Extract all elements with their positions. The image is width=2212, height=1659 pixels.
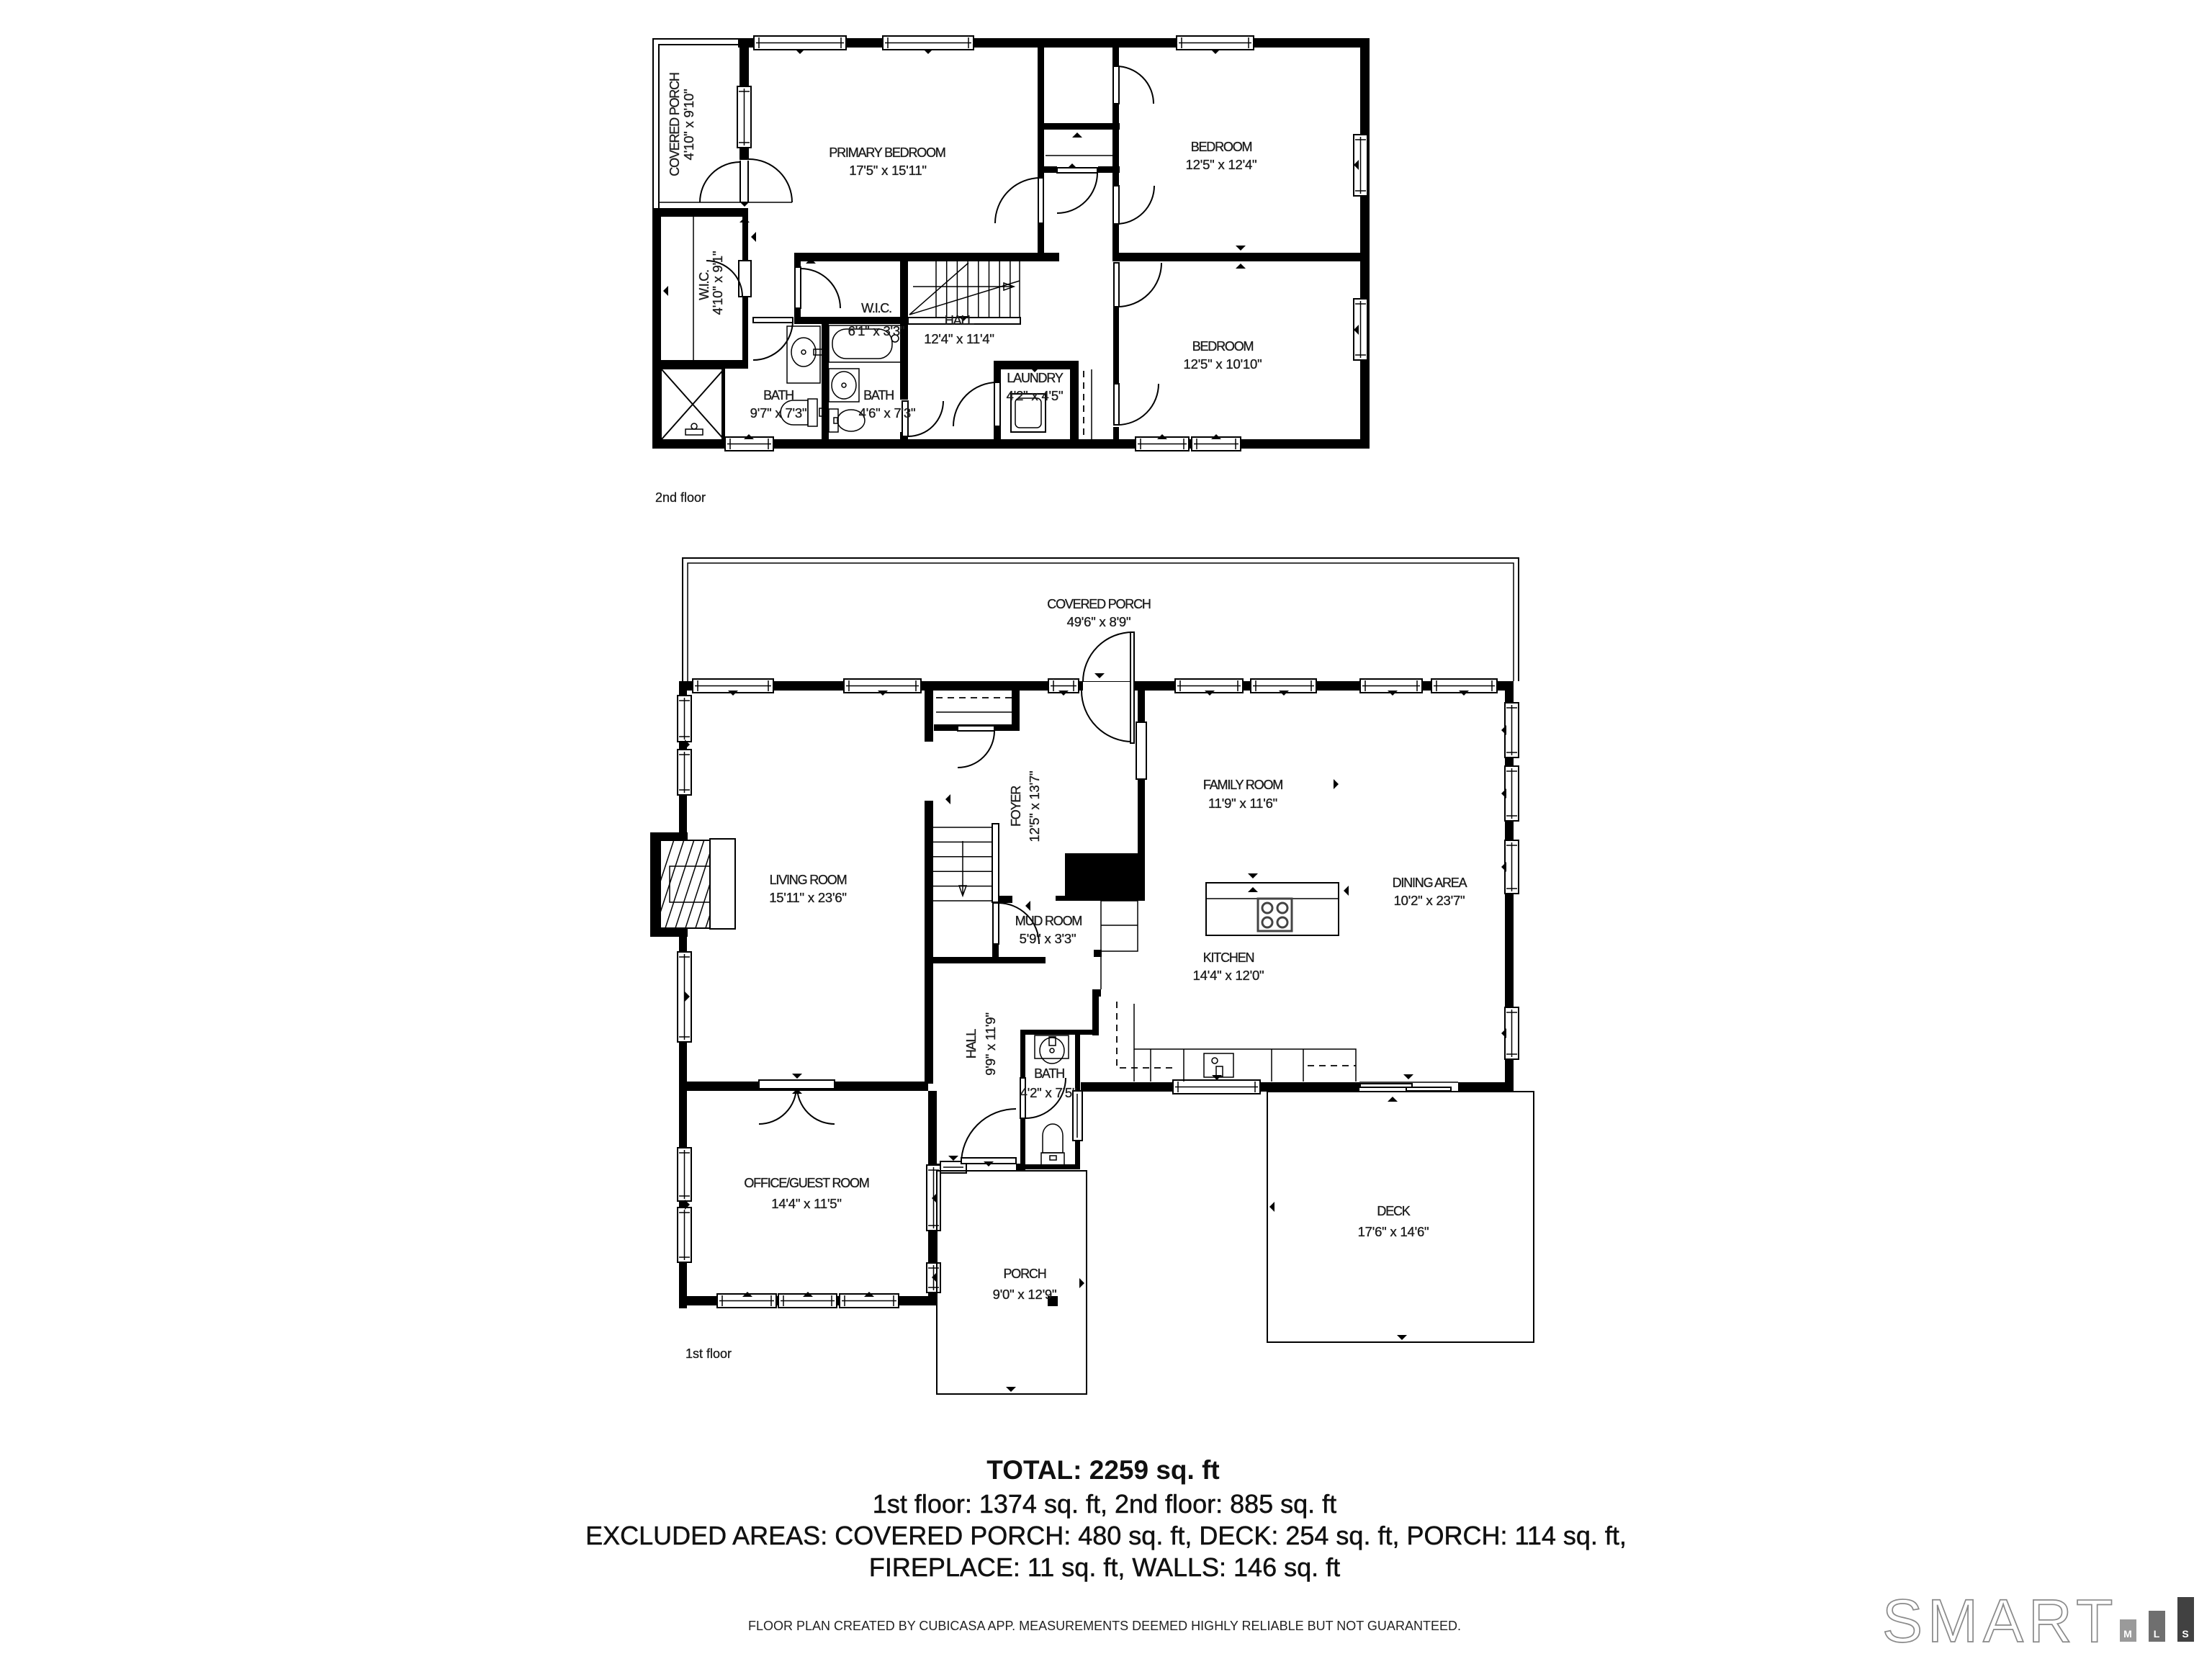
svg-text:11'9" x 11'6": 11'9" x 11'6": [1208, 796, 1277, 811]
svg-text:49'6" x 8'9": 49'6" x 8'9": [1067, 614, 1131, 629]
svg-text:DECK: DECK: [1377, 1204, 1410, 1218]
svg-text:LIVING ROOM: LIVING ROOM: [770, 873, 847, 887]
svg-text:W.I.C.: W.I.C.: [697, 270, 711, 300]
svg-text:TOTAL: 2259 sq. ft: TOTAL: 2259 sq. ft: [986, 1455, 1219, 1485]
svg-text:EXCLUDED AREAS: COVERED PORCH:: EXCLUDED AREAS: COVERED PORCH: 480 sq. f…: [585, 1521, 1627, 1550]
svg-text:15'11" x 23'6": 15'11" x 23'6": [769, 890, 847, 905]
svg-text:HALL: HALL: [945, 313, 974, 328]
svg-text:4'6" x 7'3": 4'6" x 7'3": [859, 405, 916, 421]
svg-text:12'4" x 11'4": 12'4" x 11'4": [924, 331, 994, 346]
svg-text:FOYER: FOYER: [1009, 786, 1023, 827]
svg-text:4'10" x 9'1": 4'10" x 9'1": [710, 251, 725, 315]
svg-text:OFFICE/GUEST ROOM: OFFICE/GUEST ROOM: [744, 1176, 868, 1190]
svg-text:1st floor: 1374 sq. ft, 2nd fl: 1st floor: 1374 sq. ft, 2nd floor: 885 s…: [873, 1489, 1336, 1519]
svg-text:LAUNDRY: LAUNDRY: [1007, 371, 1063, 385]
svg-text:1st floor: 1st floor: [685, 1346, 732, 1361]
svg-text:9'7" x 7'3": 9'7" x 7'3": [750, 405, 807, 421]
svg-text:FAMILY ROOM: FAMILY ROOM: [1203, 778, 1282, 792]
svg-text:BEDROOM: BEDROOM: [1192, 339, 1254, 354]
svg-text:2nd floor: 2nd floor: [655, 490, 706, 505]
svg-text:S: S: [2182, 1628, 2188, 1640]
svg-text:BEDROOM: BEDROOM: [1191, 140, 1252, 154]
svg-text:14'4" x 12'0": 14'4" x 12'0": [1193, 968, 1264, 983]
svg-text:6'1" x 3'3": 6'1" x 3'3": [848, 323, 905, 338]
svg-text:9'9" x 11'9": 9'9" x 11'9": [983, 1012, 998, 1075]
svg-text:SMART: SMART: [1882, 1587, 2118, 1655]
svg-text:PORCH: PORCH: [1003, 1267, 1046, 1281]
svg-text:4'2" x 4'5": 4'2" x 4'5": [1007, 388, 1064, 403]
svg-text:M: M: [2123, 1628, 2132, 1640]
svg-text:FIREPLACE: 11 sq. ft, WALLS: 1: FIREPLACE: 11 sq. ft, WALLS: 146 sq. ft: [869, 1552, 1340, 1582]
svg-text:12'5" x 12'4": 12'5" x 12'4": [1186, 157, 1257, 172]
svg-text:17'5" x 15'11": 17'5" x 15'11": [849, 163, 927, 178]
svg-text:COVERED PORCH: COVERED PORCH: [1047, 597, 1151, 611]
svg-text:17'6" x 14'6": 17'6" x 14'6": [1358, 1224, 1429, 1239]
svg-text:5'9" x 3'3": 5'9" x 3'3": [1020, 931, 1076, 946]
svg-text:4'10" x 9'10": 4'10" x 9'10": [681, 89, 696, 161]
svg-text:BATH: BATH: [1034, 1066, 1064, 1081]
svg-text:BATH: BATH: [763, 388, 793, 403]
svg-text:COVERED PORCH: COVERED PORCH: [667, 73, 682, 176]
svg-text:HALL: HALL: [964, 1029, 979, 1058]
svg-text:KITCHEN: KITCHEN: [1203, 950, 1254, 965]
svg-text:14'4" x 11'5": 14'4" x 11'5": [771, 1196, 842, 1211]
svg-text:9'0" x 12'9": 9'0" x 12'9": [993, 1287, 1057, 1302]
svg-text:12'5" x 10'10": 12'5" x 10'10": [1184, 356, 1262, 372]
svg-text:BATH: BATH: [863, 388, 894, 403]
svg-text:12'5" x 13'7": 12'5" x 13'7": [1027, 771, 1042, 842]
svg-text:L: L: [2154, 1628, 2160, 1640]
svg-text:DINING AREA: DINING AREA: [1393, 876, 1467, 890]
svg-text:PRIMARY BEDROOM: PRIMARY BEDROOM: [829, 145, 945, 160]
svg-text:W.I.C.: W.I.C.: [861, 301, 891, 315]
svg-text:4'2" x 7'5": 4'2" x 7'5": [1020, 1085, 1077, 1100]
svg-text:10'2" x 23'7": 10'2" x 23'7": [1394, 893, 1465, 908]
svg-text:MUD ROOM: MUD ROOM: [1015, 914, 1082, 928]
svg-text:FLOOR PLAN CREATED BY CUBICASA: FLOOR PLAN CREATED BY CUBICASA APP. MEAS…: [748, 1619, 1461, 1633]
